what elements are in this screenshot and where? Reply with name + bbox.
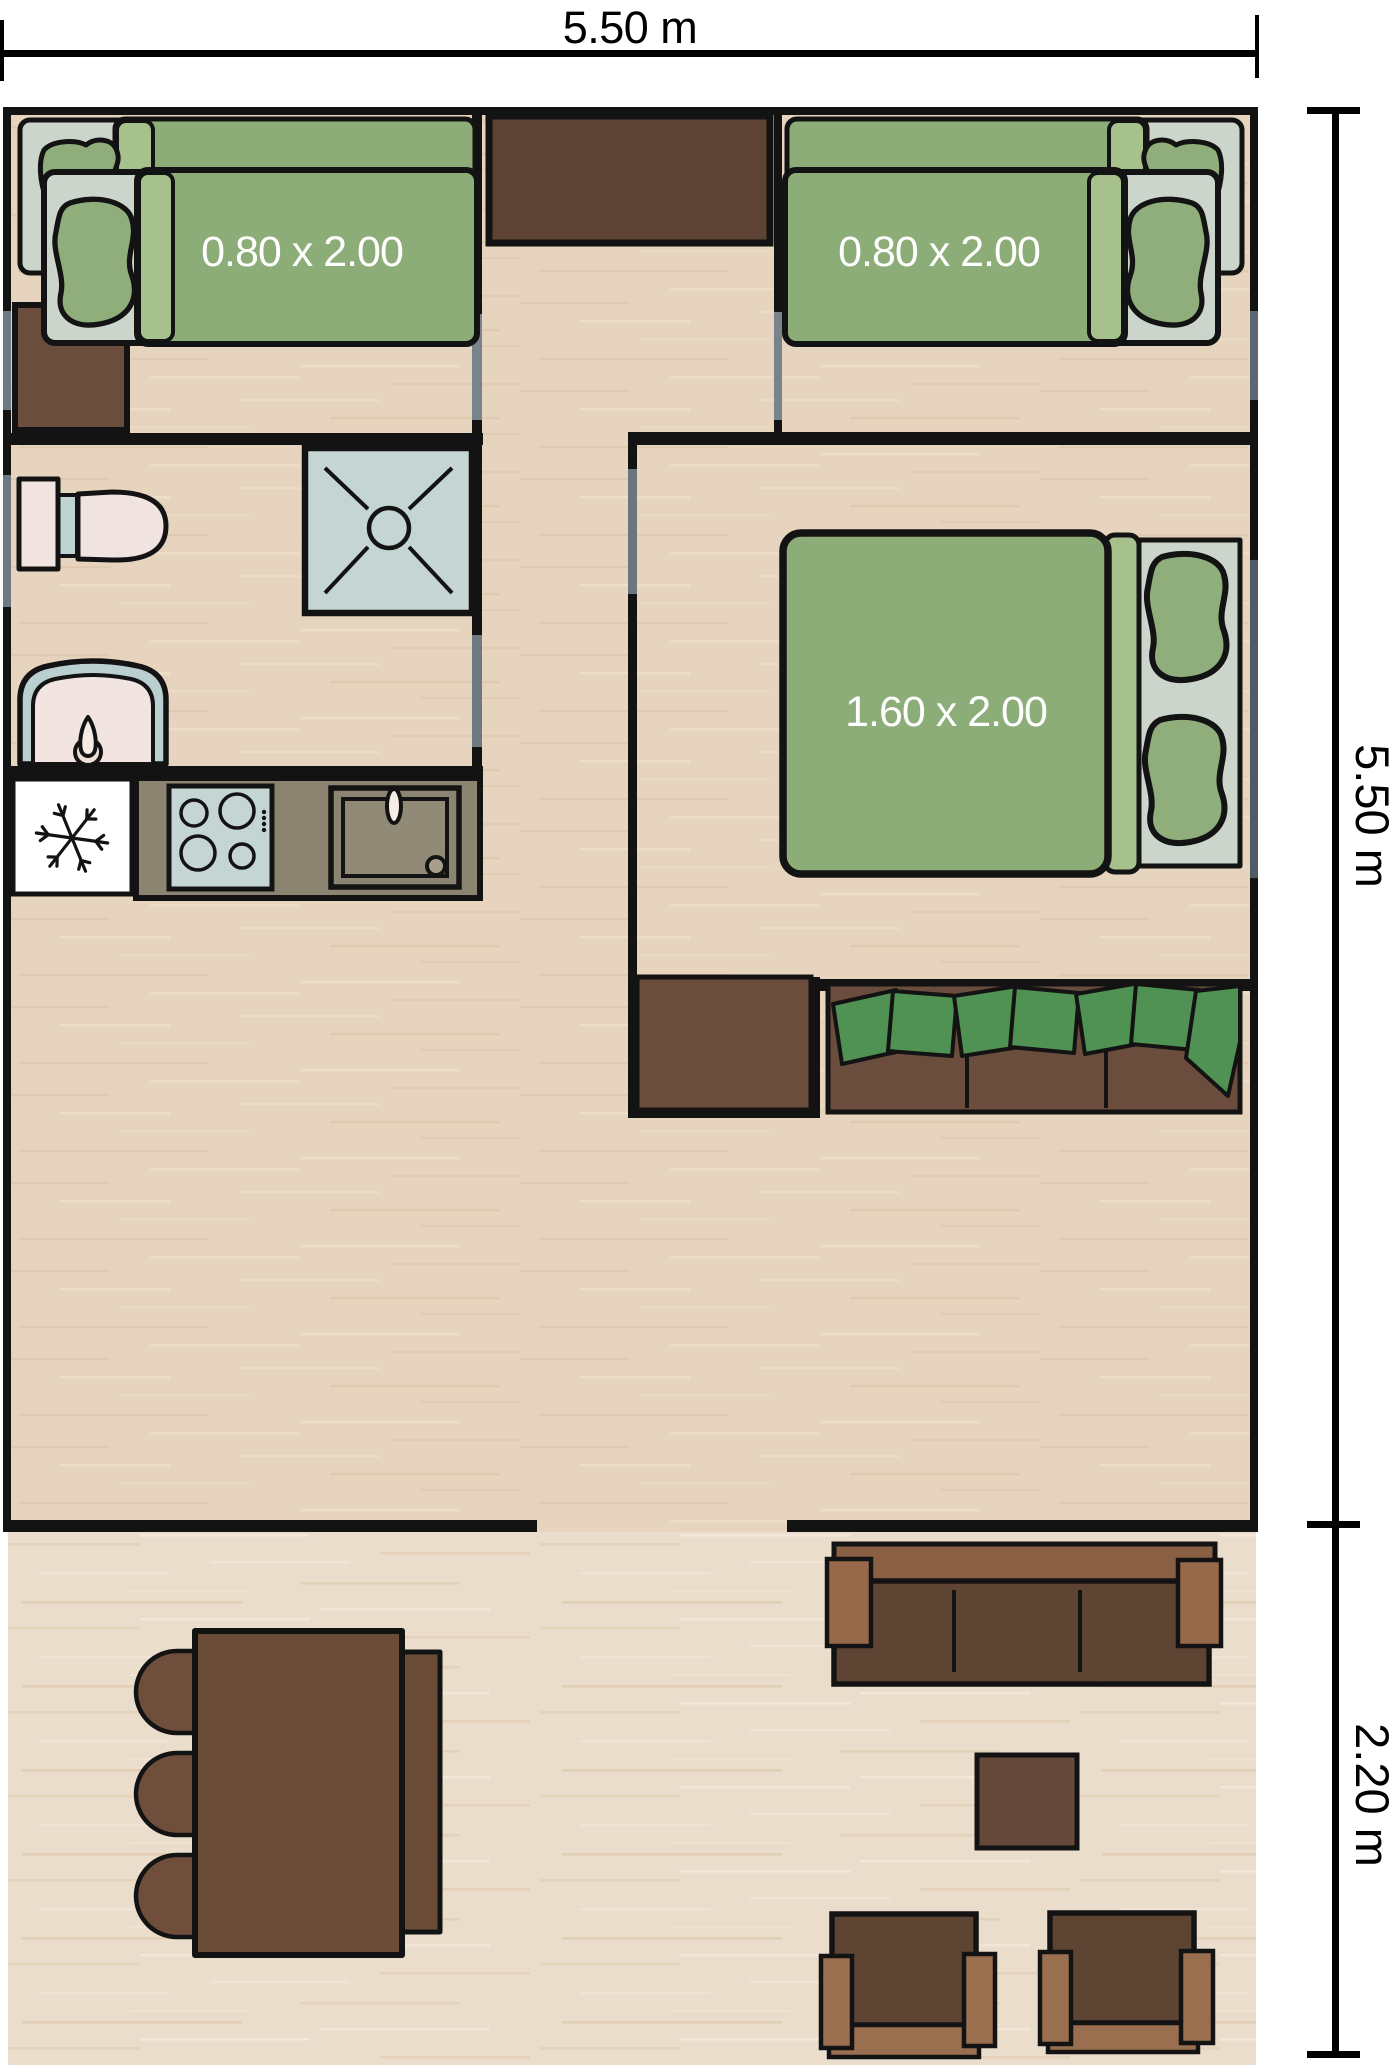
svg-text:2.20 m: 2.20 m <box>1346 1723 1398 1867</box>
svg-text:1.60 x 2.00: 1.60 x 2.00 <box>845 688 1047 736</box>
svg-text:5.50 m: 5.50 m <box>1346 744 1398 888</box>
svg-text:5.50 m: 5.50 m <box>563 2 698 53</box>
svg-text:0.80 x 2.00: 0.80 x 2.00 <box>201 228 403 276</box>
svg-text:0.80 x 2.00: 0.80 x 2.00 <box>838 228 1040 276</box>
